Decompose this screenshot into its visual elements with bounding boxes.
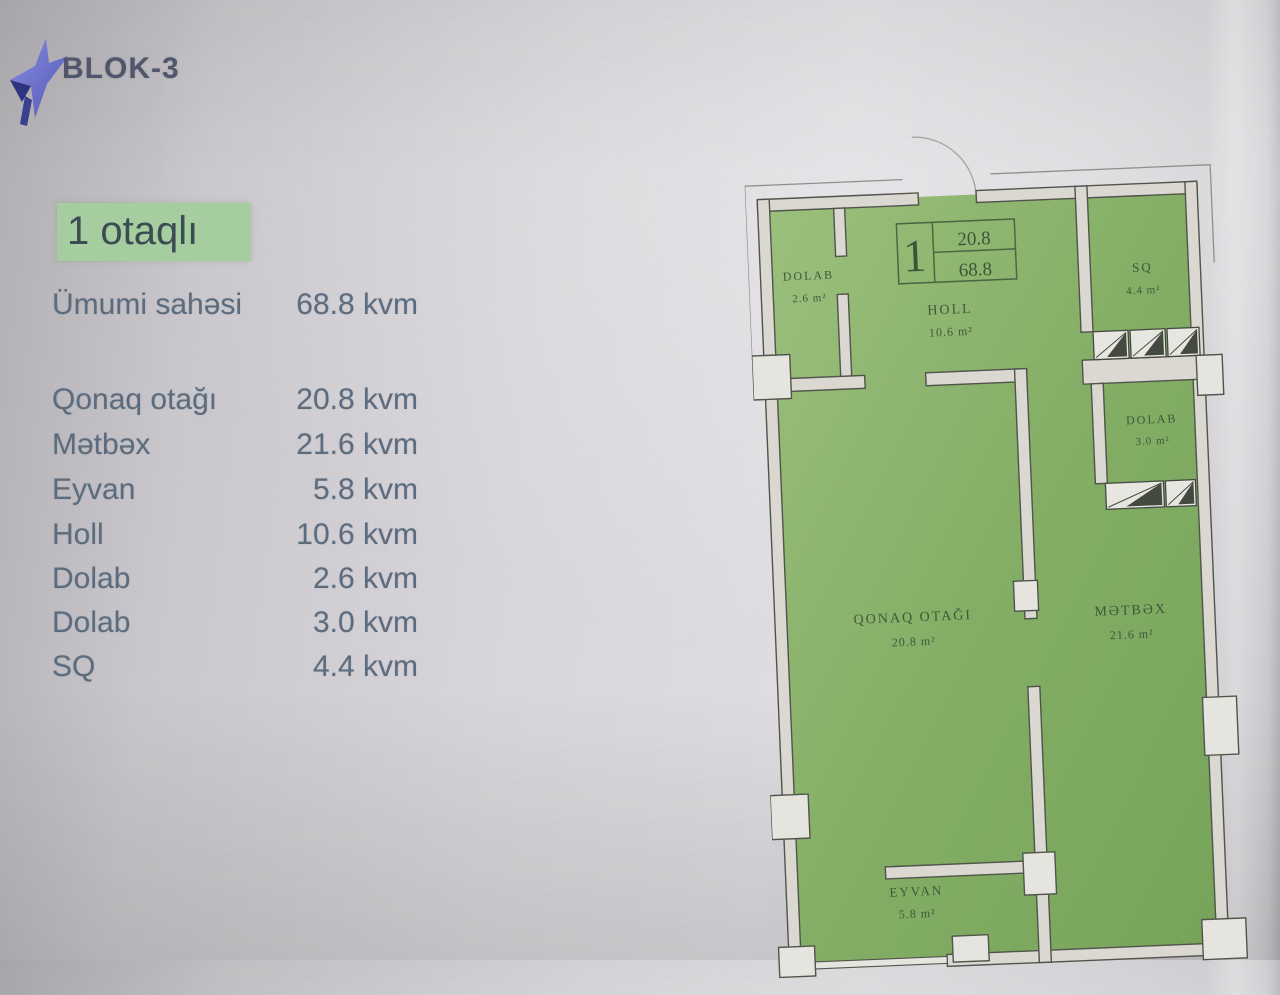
apartment-interior [761, 185, 1225, 968]
spec-row-qonaq: Qonaq otağı 20.8 kvm [52, 383, 418, 419]
spec-row-eyvan: Eyvan 5.8 kvm [52, 473, 418, 509]
room-label: Dolab [52, 606, 130, 642]
room-label: Eyvan [52, 473, 135, 509]
room-area-sq: 4.4 m² [1126, 284, 1161, 297]
floor-plan: 1 20.8 68.8 DOLAB 2.6 m² HOLL 10.6 m² SQ… [742, 106, 1250, 989]
floor-plan-drawing: 1 20.8 68.8 DOLAB 2.6 m² HOLL 10.6 m² SQ… [742, 106, 1250, 989]
room-label: SQ [52, 650, 95, 686]
summary-value: 68.8 kvm [296, 288, 418, 324]
room-value: 21.6 kvm [296, 428, 418, 464]
room-value: 2.6 kvm [313, 562, 418, 598]
room-area-dolab2: 3.0 m² [1135, 435, 1170, 448]
entrance-door-arc [912, 135, 977, 200]
room-label-metbex: MƏTBƏX [1094, 602, 1167, 620]
room-label: Holl [52, 518, 104, 554]
room-value: 10.6 kvm [296, 518, 418, 554]
room-area-qonaq: 20.8 m² [892, 634, 936, 650]
unit-total-area: 68.8 [958, 259, 992, 281]
room-value: 4.4 kvm [313, 650, 418, 686]
room-area-dolab1: 2.6 m² [792, 292, 827, 305]
room-label-eyvan: EYVAN [889, 883, 943, 900]
room-area-holl: 10.6 m² [929, 324, 973, 340]
apartment-type-badge: 1 otaqlı [57, 203, 251, 261]
summary-row: Ümumi sahəsi 68.8 kvm [52, 288, 418, 324]
spec-row-dolab2: Dolab 3.0 kvm [52, 606, 418, 642]
spec-row-metbex: Mətbəx 21.6 kvm [52, 428, 418, 464]
room-value: 3.0 kvm [313, 606, 418, 642]
room-area-eyvan: 5.8 m² [898, 906, 935, 922]
spec-row-sq: SQ 4.4 kvm [52, 650, 418, 686]
room-label-dolab1: DOLAB [782, 268, 834, 284]
summary-label: Ümumi sahəsi [52, 288, 242, 324]
spec-row-dolab1: Dolab 2.6 kvm [52, 562, 418, 598]
room-label: Dolab [52, 562, 130, 598]
room-label-sq: SQ [1132, 259, 1153, 275]
room-label-holl: HOLL [927, 302, 973, 319]
room-area-metbex: 21.6 m² [1109, 626, 1153, 642]
room-value: 20.8 kvm [296, 383, 418, 419]
brand-label: BLOK-3 [62, 52, 180, 86]
spec-row-holl: Holl 10.6 kvm [52, 518, 418, 554]
room-label: Mətbəx [52, 428, 150, 464]
brand-header: BLOK-3 [8, 34, 268, 126]
unit-room-area: 20.8 [957, 228, 991, 250]
room-value: 5.8 kvm [313, 473, 418, 509]
room-label-dolab2: DOLAB [1126, 411, 1178, 427]
unit-number: 1 [902, 230, 927, 282]
room-label: Qonaq otağı [52, 383, 217, 419]
